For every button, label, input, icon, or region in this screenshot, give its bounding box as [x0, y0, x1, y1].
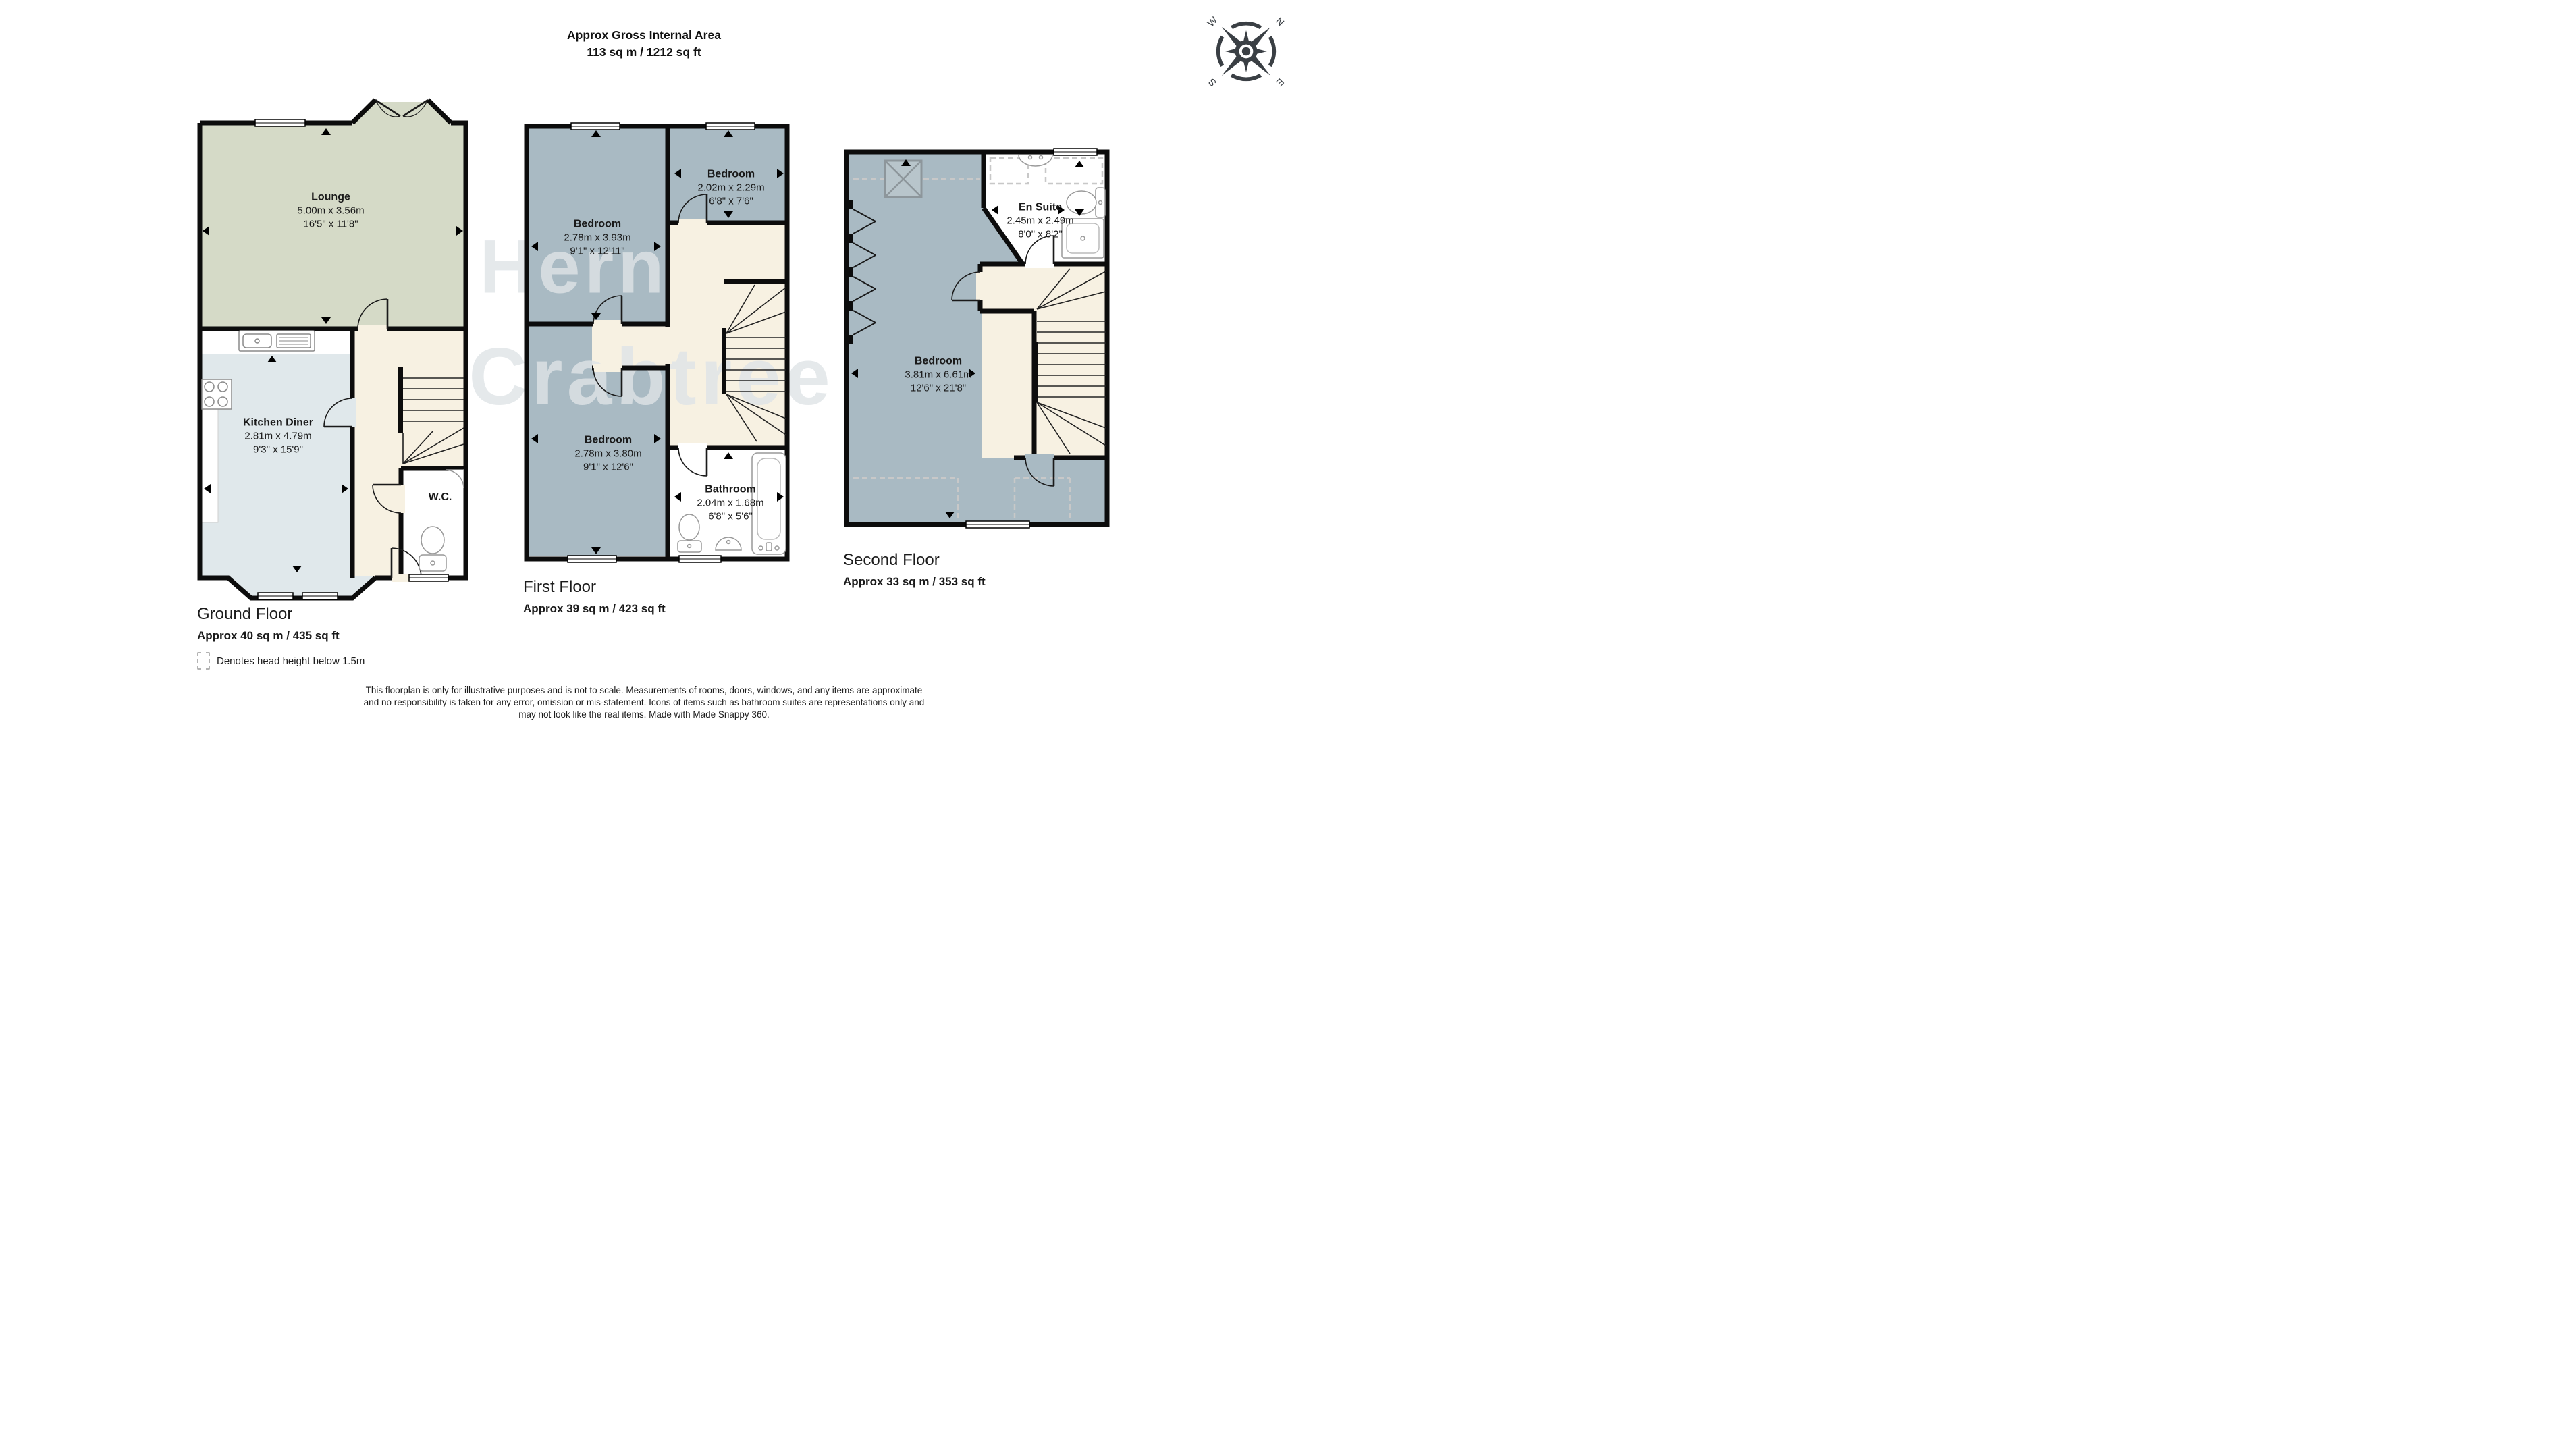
door-arcs: [324, 100, 428, 578]
room-label-bedroom3: Bedroom 2.78m x 3.80m 9'1" x 12'6": [574, 434, 641, 474]
compass-north-label: N: [1273, 16, 1286, 28]
kitchen-sink-icon: [239, 331, 315, 351]
caption-second-floor: Second Floor Approx 33 sq m / 353 sq ft: [843, 551, 986, 589]
stairs-first: [726, 285, 786, 441]
room-label-kitchen: Kitchen Diner 2.81m x 4.79m 9'3" x 15'9": [243, 416, 313, 456]
room-label-bathroom: Bathroom 2.04m x 1.68m 6'8" x 5'6": [697, 483, 763, 523]
page-title: Approx Gross Internal Area 113 sq m / 12…: [0, 27, 1288, 61]
room-label-bedroom2: Bedroom 2.02m x 2.29m 6'8" x 7'6": [697, 168, 764, 208]
compass-south-label: S: [1206, 76, 1218, 88]
wardrobe-doors: [847, 200, 876, 344]
ground-walls-fixtures: [196, 90, 473, 610]
stairs-second: [1037, 269, 1106, 454]
caption-ground-floor: Ground Floor Approx 40 sq m / 435 sq ft: [197, 605, 340, 643]
room-label-lounge: Lounge 5.00m x 3.56m 16'5" x 11'8": [297, 191, 364, 231]
room-label-ensuite: En Suite 2.45m x 2.49m 8'0" x 8'2": [1007, 201, 1073, 241]
floorplan-page: Approx Gross Internal Area 113 sq m / 12…: [0, 0, 1288, 728]
toilet-icon: [419, 527, 446, 571]
disclaimer-line1: This floorplan is only for illustrative …: [0, 684, 1288, 697]
basin-icon: [716, 537, 741, 550]
ensuite-basin-icon: [1019, 155, 1052, 166]
hob-icon: [202, 379, 232, 409]
compass-east-label: E: [1273, 76, 1285, 88]
stairs-ground: [403, 378, 464, 464]
second-walls-fixtures: [842, 140, 1112, 532]
disclaimer: This floorplan is only for illustrative …: [0, 684, 1288, 720]
door-leaves: [324, 100, 428, 578]
dashed-box-icon: [197, 652, 210, 670]
floorplan-ground: [196, 90, 473, 610]
skylight-icon: [885, 161, 921, 197]
legend-text: Denotes head height below 1.5m: [217, 655, 365, 667]
room-label-bedroom1: Bedroom 2.78m x 3.93m 9'1" x 12'11": [564, 218, 630, 258]
floorplan-second: [842, 140, 1112, 532]
caption-first-floor: First Floor Approx 39 sq m / 423 sq ft: [523, 578, 666, 616]
compass-west-label: W: [1206, 15, 1220, 29]
disclaimer-line2: and no responsibility is taken for any e…: [0, 697, 1288, 709]
gross-area-title: Approx Gross Internal Area: [0, 27, 1288, 44]
gross-area-value: 113 sq m / 1212 sq ft: [0, 44, 1288, 61]
room-label-wc: W.C.: [429, 491, 452, 504]
disclaimer-line3: may not look like the real items. Made w…: [0, 709, 1288, 721]
head-height-legend: Denotes head height below 1.5m: [197, 652, 365, 670]
compass-icon: W N S E: [1204, 9, 1288, 93]
corner-basin-icon: [446, 470, 464, 488]
room-label-bedroom-second: Bedroom 3.81m x 6.61m 12'6" x 21'8": [905, 355, 971, 395]
